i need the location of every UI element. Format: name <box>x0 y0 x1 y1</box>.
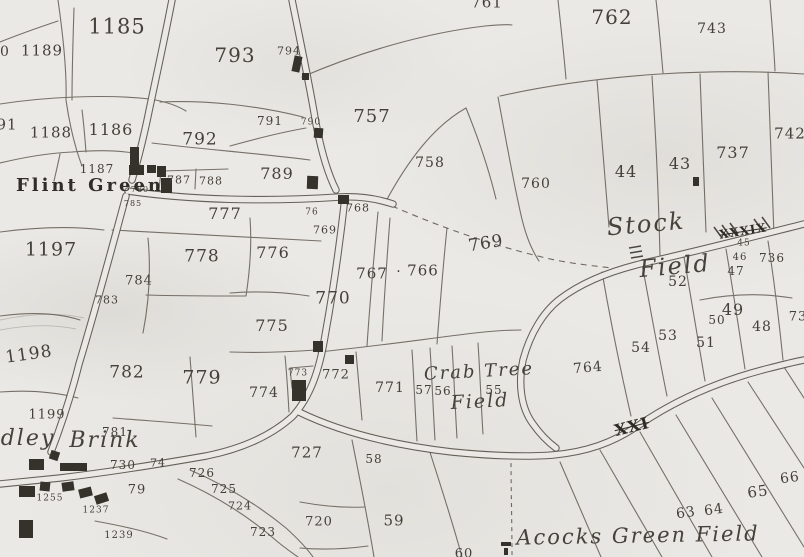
parcel-number-label: 778 <box>184 249 219 266</box>
parcel-number-label: 57 <box>415 384 432 396</box>
parcel-number-label: 742 <box>774 127 804 142</box>
building-footprint <box>78 487 93 499</box>
parcel-number-label: 779 <box>182 369 221 388</box>
parcel-number-label: 79 <box>128 484 147 497</box>
parcel-number-label: 60 <box>455 548 474 557</box>
building-footprint <box>693 177 699 186</box>
parcel-number-label: 772 <box>322 369 350 382</box>
parcel-number-label: 784 <box>125 275 153 288</box>
parcel-number-label: 766 <box>407 264 439 279</box>
parcel-number-label: 46 <box>733 253 748 263</box>
parcel-number-label: 777 <box>208 206 242 222</box>
building-footprint <box>60 463 87 471</box>
building-footprint <box>504 548 508 555</box>
parcel-number-label: 794 <box>277 46 301 57</box>
parcel-number-label: 760 <box>521 177 551 191</box>
parcel-number-label: 724 <box>228 501 252 512</box>
parcel-number-label: 788 <box>199 176 223 187</box>
building-footprint <box>29 459 44 470</box>
parcel-number-label: 758 <box>415 156 445 170</box>
parcel-number-label: 73 <box>789 311 804 324</box>
parcel-number-label: 770 <box>315 291 350 308</box>
parcel-number-label: 1189 <box>21 44 63 59</box>
parcel-number-label: 792 <box>182 132 217 149</box>
place-name-label: dley <box>1 428 56 450</box>
parcel-number-label: 726 <box>189 467 215 479</box>
building-footprint <box>302 73 309 80</box>
building-footprint <box>61 481 74 492</box>
building-footprint <box>345 355 354 364</box>
parcel-number-label: 762 <box>591 7 632 27</box>
parcel-number-label: 736 <box>759 252 785 264</box>
building-footprint <box>94 492 109 505</box>
building-footprint <box>307 176 318 189</box>
parcel-number-label: 74 <box>150 458 166 469</box>
parcel-number-label: 771 <box>375 381 405 395</box>
parcel-number-label: 789 <box>260 166 294 182</box>
parcel-number-label: 1186 <box>89 122 134 138</box>
parcel-number-label: 774 <box>249 386 279 400</box>
parcel-number-label: 44 <box>615 164 637 180</box>
parcel-number-label: 768 <box>346 203 370 214</box>
parcel-number-label: 1197 <box>25 241 77 260</box>
parcel-number-label: 761 <box>471 0 503 11</box>
parcel-number-label: 1187 <box>80 163 115 175</box>
parcel-number-label: 773 <box>288 370 308 379</box>
parcel-number-label: 1255 <box>37 495 64 504</box>
parcel-number-label: 58 <box>365 453 382 465</box>
parcel-number-label: 767 <box>356 267 388 282</box>
parcel-number-label: 45 <box>737 240 750 249</box>
parcel-number-label: 723 <box>250 526 276 538</box>
parcel-number-label: 775 <box>255 318 289 334</box>
parcel-number-label: 65 <box>747 483 770 501</box>
parcel-number-label: 47 <box>727 265 744 277</box>
parcel-number-label: 1239 <box>104 531 133 541</box>
parcel-number-label: 66 <box>779 470 801 487</box>
building-footprint <box>313 341 323 352</box>
place-name-label: Field <box>638 251 711 281</box>
parcel-number-label: 53 <box>658 329 678 343</box>
stream-lines <box>0 314 84 330</box>
parcel-number-label: 790 <box>301 119 321 128</box>
place-name-label: Stock <box>606 209 686 240</box>
parcel-number-label: 63 <box>675 505 697 522</box>
parcel-number-label: 730 <box>110 459 136 471</box>
parcel-number-label: 59 <box>383 514 404 529</box>
parcel-number-label: 757 <box>353 108 390 126</box>
parcel-number-label: 785 <box>124 200 142 208</box>
parcel-number-label: 56 <box>434 385 451 397</box>
building-footprint <box>292 380 306 401</box>
parcel-number-label: 48 <box>752 320 772 334</box>
parcel-number-label: 54 <box>631 341 651 355</box>
parcel-number-label: 76 <box>305 209 318 218</box>
parcel-number-label: 743 <box>697 22 727 36</box>
building-footprint <box>501 542 511 546</box>
parcel-number-label: 1185 <box>88 17 145 38</box>
parcel-number-label: 793 <box>214 45 255 65</box>
parcel-number-label: 1237 <box>83 507 110 516</box>
place-name-label: Field <box>450 391 510 413</box>
parcel-number-label: 764 <box>573 360 604 377</box>
parcel-number-label: 50 <box>708 314 725 326</box>
parcel-number-label: 782 <box>109 365 144 382</box>
place-name-label: Flint Green <box>16 177 164 195</box>
parcel-number-label: 64 <box>703 502 725 519</box>
parcel-number-label: 720 <box>305 516 333 529</box>
parcel-number-label: 1199 <box>28 409 65 422</box>
parcel-number-label: 776 <box>256 245 290 261</box>
building-footprint <box>291 55 302 72</box>
building-footprint <box>147 165 156 173</box>
parcel-number-label: 0 <box>0 45 10 59</box>
parcel-number-label: 725 <box>211 483 237 495</box>
parcel-number-label: 787 <box>167 175 191 186</box>
building-footprint <box>129 165 144 175</box>
building-footprint <box>130 147 139 168</box>
building-footprint <box>40 482 51 492</box>
parcel-number-label: 769 <box>313 225 337 236</box>
parcel-number-label: 91 <box>0 118 18 133</box>
parcel-number-label: 791 <box>257 115 283 127</box>
parcel-number-label: 727 <box>291 446 323 461</box>
parcel-number-label: 1188 <box>30 126 72 141</box>
parcel-number-label: . <box>396 261 401 275</box>
building-footprint <box>19 486 35 497</box>
building-footprint <box>19 520 33 538</box>
parcel-number-label: 51 <box>696 336 716 350</box>
map-canvas: 1185118901186118891118711971198119979379… <box>0 0 804 557</box>
parcel-number-label: 737 <box>716 145 750 161</box>
place-name-label: Acocks Green Field <box>516 523 760 548</box>
building-footprint <box>314 128 324 139</box>
parcel-number-label: 43 <box>669 156 691 172</box>
parcel-number-label: 783 <box>95 295 119 306</box>
place-name-label: Brink <box>69 430 140 452</box>
